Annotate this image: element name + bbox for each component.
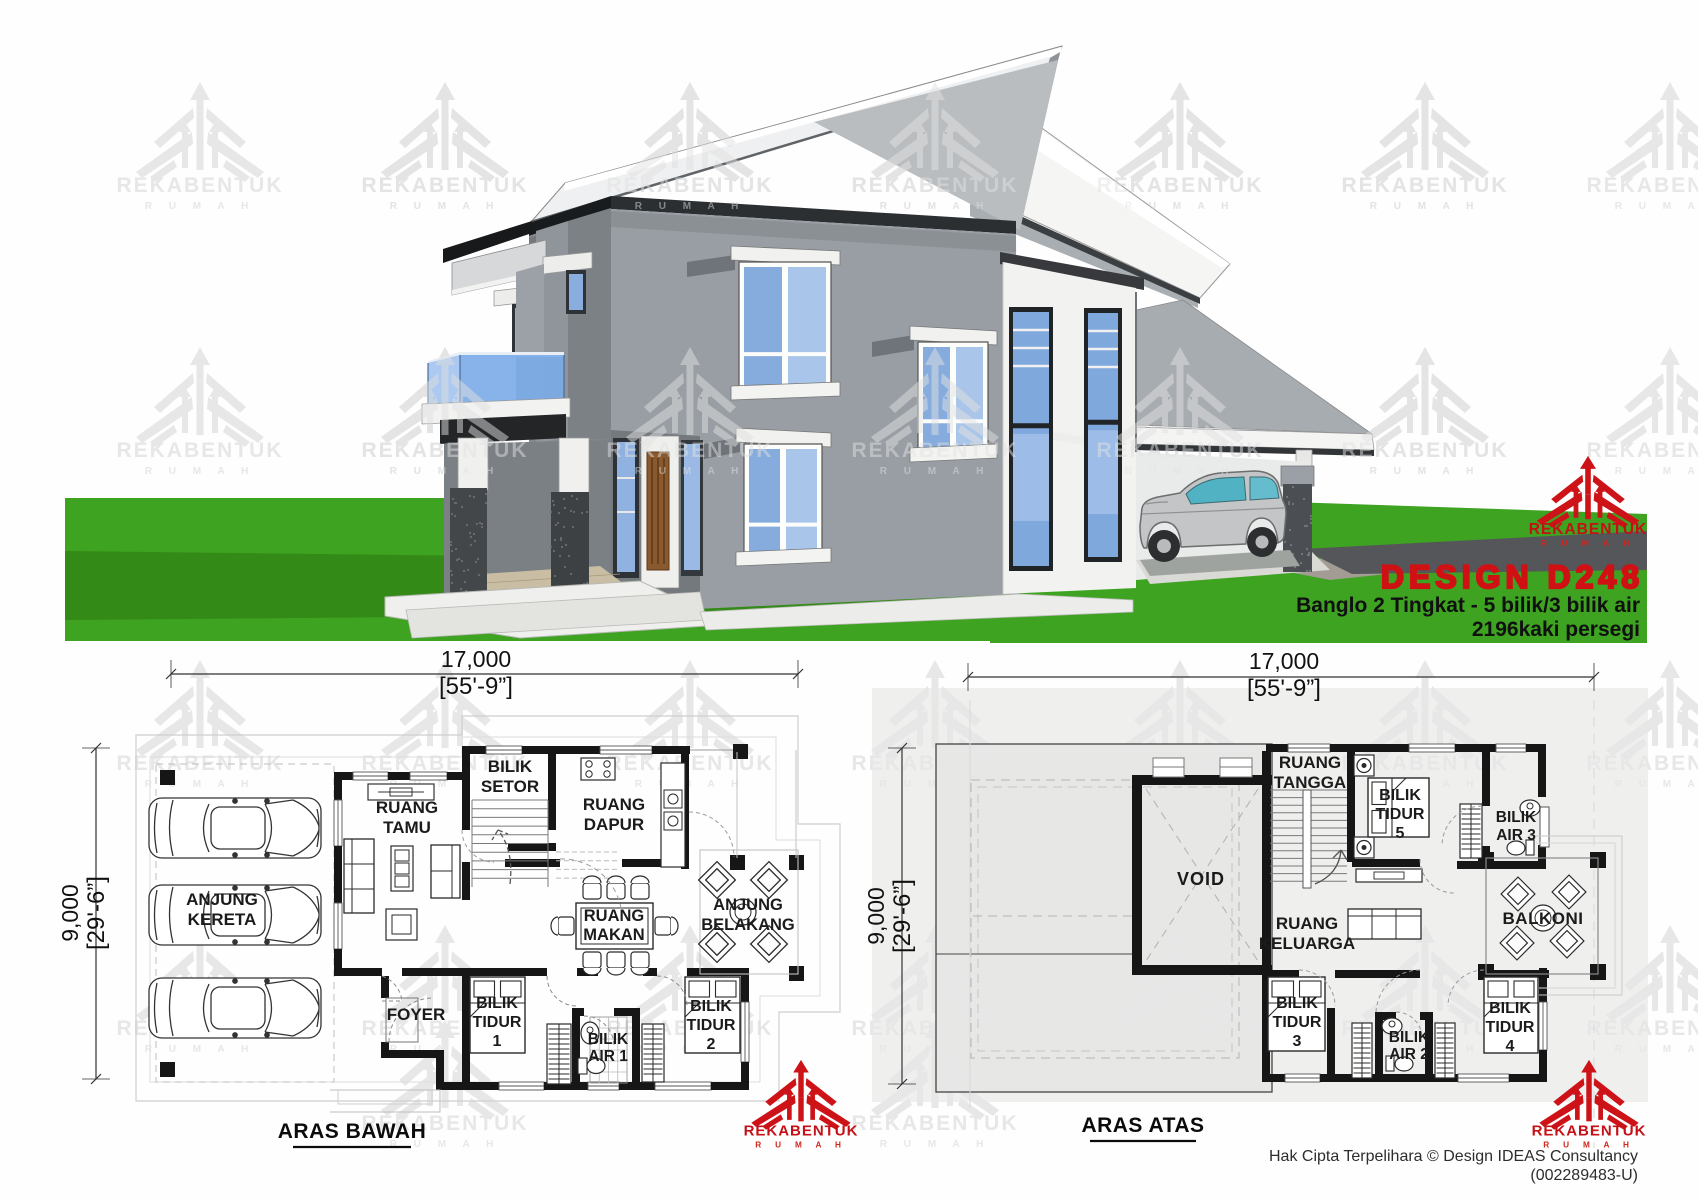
svg-text:BELAKANG: BELAKANG bbox=[701, 916, 795, 934]
svg-text:AIR 2: AIR 2 bbox=[1389, 1046, 1429, 1063]
svg-text:KELUARGA: KELUARGA bbox=[1259, 934, 1355, 953]
svg-text:ARAS ATAS: ARAS ATAS bbox=[1081, 1114, 1204, 1137]
svg-text:TIDUR: TIDUR bbox=[687, 1017, 736, 1034]
svg-text:ANJUNG: ANJUNG bbox=[186, 890, 258, 909]
svg-text:KERETA: KERETA bbox=[188, 910, 257, 929]
svg-text:TAMU: TAMU bbox=[383, 818, 431, 837]
svg-text:Hak Cipta Terpelihara © Desig: Hak Cipta Terpelihara © Design IDEAS Con… bbox=[1269, 1148, 1638, 1165]
svg-text:AIR 1: AIR 1 bbox=[588, 1048, 628, 1065]
svg-text:ARAS BAWAH: ARAS BAWAH bbox=[278, 1120, 427, 1143]
svg-text:(002289483-U): (002289483-U) bbox=[1530, 1167, 1638, 1184]
svg-text:3: 3 bbox=[1293, 1033, 1302, 1050]
svg-text:FOYER: FOYER bbox=[387, 1005, 446, 1024]
svg-text:TIDUR: TIDUR bbox=[1486, 1019, 1535, 1036]
svg-text:BILIK: BILIK bbox=[1496, 809, 1537, 826]
svg-text:9,000: 9,000 bbox=[57, 884, 83, 942]
svg-text:BILIK: BILIK bbox=[588, 1031, 629, 1048]
svg-text:[29'-6”]: [29'-6”] bbox=[889, 879, 916, 953]
svg-text:MAKAN: MAKAN bbox=[583, 926, 644, 944]
svg-text:DAPUR: DAPUR bbox=[584, 815, 644, 834]
svg-text:BILIK: BILIK bbox=[1379, 787, 1421, 804]
svg-text:BILIK: BILIK bbox=[1389, 1029, 1430, 1046]
svg-text:RUANG: RUANG bbox=[376, 798, 438, 817]
svg-text:17,000: 17,000 bbox=[441, 646, 511, 672]
svg-text:SETOR: SETOR bbox=[481, 777, 539, 796]
svg-text:[29'-6”]: [29'-6”] bbox=[83, 876, 110, 950]
svg-text:4: 4 bbox=[1506, 1038, 1515, 1055]
svg-text:BILIK: BILIK bbox=[476, 995, 518, 1012]
svg-text:BILIK: BILIK bbox=[690, 998, 732, 1015]
svg-text:TIDUR: TIDUR bbox=[473, 1014, 522, 1031]
svg-text:BALKONI: BALKONI bbox=[1503, 909, 1584, 928]
svg-text:5: 5 bbox=[1396, 825, 1405, 842]
svg-text:BILIK: BILIK bbox=[488, 757, 533, 776]
svg-text:BILIK: BILIK bbox=[1276, 995, 1318, 1012]
svg-text:RUANG: RUANG bbox=[583, 795, 645, 814]
svg-text:ANJUNG: ANJUNG bbox=[713, 896, 783, 914]
svg-text:Banglo 2 Tingkat - 5 bilik/3 b: Banglo 2 Tingkat - 5 bilik/3 bilik air bbox=[1296, 594, 1640, 617]
svg-text:AIR 3: AIR 3 bbox=[1496, 827, 1536, 844]
svg-text:BILIK: BILIK bbox=[1489, 1000, 1531, 1017]
svg-text:RUANG: RUANG bbox=[1279, 753, 1341, 772]
svg-text:9,000: 9,000 bbox=[863, 887, 889, 945]
svg-text:17,000: 17,000 bbox=[1249, 648, 1319, 674]
svg-text:RUANG: RUANG bbox=[584, 907, 645, 925]
svg-text:[55'-9”]: [55'-9”] bbox=[1247, 675, 1321, 702]
svg-text:2196kaki persegi: 2196kaki persegi bbox=[1472, 618, 1640, 641]
svg-text:TIDUR: TIDUR bbox=[1273, 1014, 1322, 1031]
svg-text:2: 2 bbox=[707, 1036, 716, 1053]
svg-text:DESIGN D248: DESIGN D248 bbox=[1381, 559, 1644, 595]
svg-text:RUANG: RUANG bbox=[1276, 914, 1338, 933]
svg-text:TIDUR: TIDUR bbox=[1376, 806, 1425, 823]
svg-text:VOID: VOID bbox=[1177, 869, 1225, 889]
svg-text:[55'-9”]: [55'-9”] bbox=[439, 673, 513, 700]
svg-text:1: 1 bbox=[493, 1033, 502, 1050]
svg-text:TANGGA: TANGGA bbox=[1274, 773, 1346, 792]
